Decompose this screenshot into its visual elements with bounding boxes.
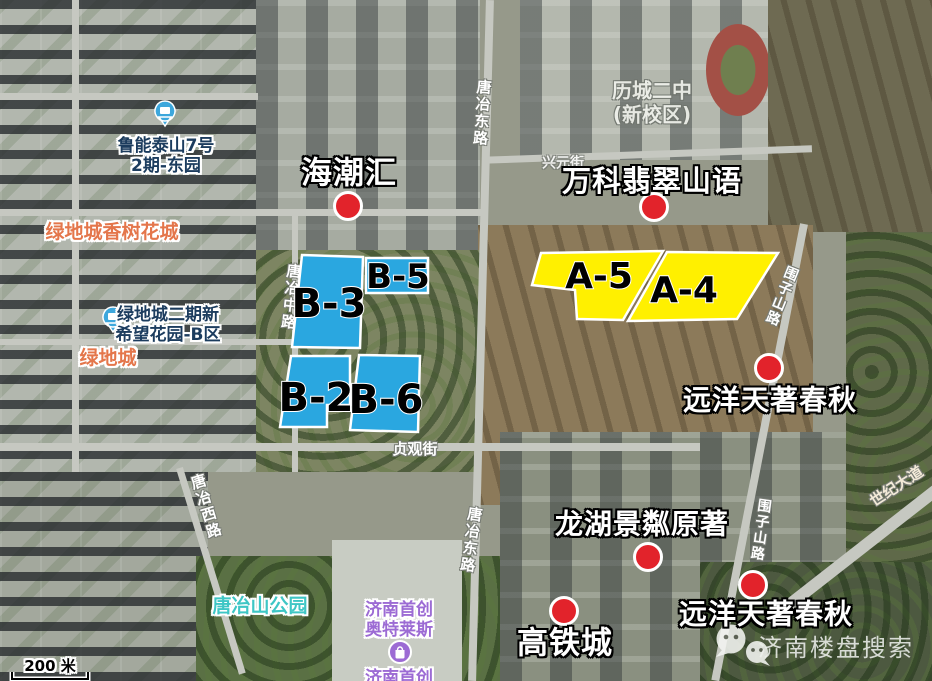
poi-label-tangyeshan-park: 唐冶山公园 <box>212 595 307 617</box>
project-marker-yuanyang-right <box>756 355 783 382</box>
watermark-text: 济南楼盘搜索 <box>758 634 914 662</box>
parcel-label-b2: B-2 <box>279 375 354 421</box>
poi-label-outlet-line1: 济南首创 <box>365 600 433 620</box>
project-label-haichaohui: 海潮汇 <box>301 156 397 193</box>
project-label-yuanyang-bottom: 远洋天著春秋 <box>679 597 853 630</box>
project-marker-longhu-jinglin <box>635 544 662 571</box>
poi-pin-outlet[interactable] <box>389 641 411 663</box>
satellite-map-canvas[interactable]: 唐冶东路 唐冶中路 唐冶西路 唐冶东路 贞观街 兴元街 围子山路 围子山路 世纪… <box>0 0 932 681</box>
poi-label-lvdi-erqi: 绿地城二期新 希望花园-B区 <box>115 305 220 345</box>
poi-label-licheng-school: 历城二中 (新校区) <box>612 79 692 126</box>
poi-label-luneng-line1: 鲁能泰山7号 <box>118 136 215 156</box>
poi-label-lvdicheng: 绿地城 <box>79 347 136 369</box>
poi-label-shouchuang-bottom: 济南首创 <box>365 668 433 681</box>
project-label-gaotiecheng: 高铁城 <box>517 626 613 663</box>
poi-label-lvdi-erqi-line1: 绿地城二期新 <box>115 305 220 325</box>
poi-pin-luneng[interactable] <box>155 101 175 126</box>
project-label-yuanyang-right: 远洋天著春秋 <box>683 383 857 416</box>
scale-bar-label: 200 米 <box>24 658 76 676</box>
parcel-label-b3: B-3 <box>292 281 367 327</box>
project-marker-yuanyang-bottom <box>740 572 767 599</box>
parcel-label-a5: A-5 <box>565 256 633 297</box>
poi-label-luneng-line2: 2期-东园 <box>118 156 215 176</box>
project-marker-gaotiecheng <box>551 598 578 625</box>
parcel-label-b5: B-5 <box>366 257 430 297</box>
poi-label-lvdi-erqi-line2: 希望花园-B区 <box>115 325 220 345</box>
project-marker-haichaohui <box>335 193 362 220</box>
poi-label-outlet: 济南首创 奥特莱斯 <box>365 600 433 640</box>
poi-label-luneng: 鲁能泰山7号 2期-东园 <box>118 136 215 176</box>
building-icon <box>160 107 170 114</box>
project-label-vanke-feicui: 万科翡翠山语 <box>562 164 742 198</box>
shopping-bag-icon <box>396 650 405 659</box>
poi-label-lvdi-xiangshu: 绿地城香树花城 <box>45 221 178 243</box>
poi-label-licheng-line1: 历城二中 <box>612 79 692 103</box>
poi-label-outlet-line2: 奥特莱斯 <box>365 620 433 640</box>
project-label-longhu-jinglin: 龙湖景粼原著 <box>555 507 729 540</box>
poi-label-licheng-line2: (新校区) <box>612 103 692 127</box>
parcel-label-a4: A-4 <box>650 270 718 311</box>
parcel-label-b6: B-6 <box>349 377 424 423</box>
